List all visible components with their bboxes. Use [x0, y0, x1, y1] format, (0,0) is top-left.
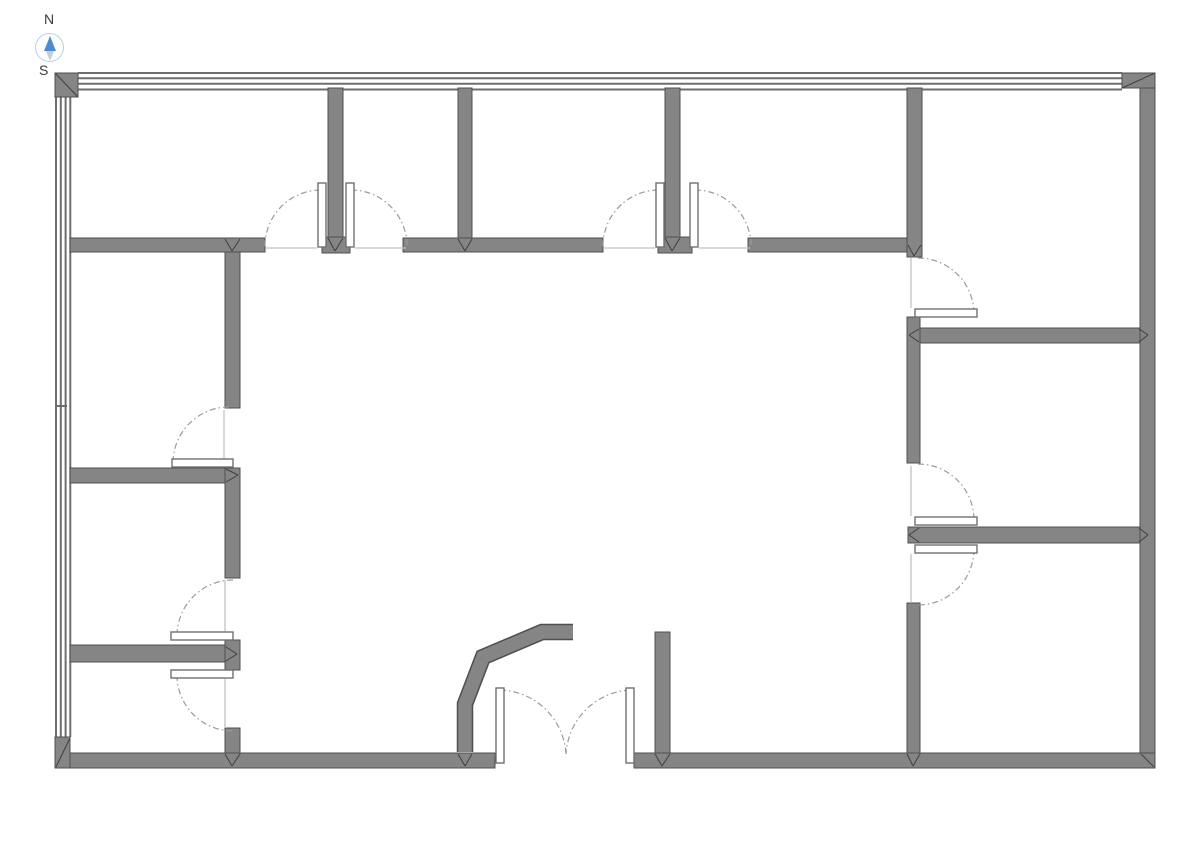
wall [225, 640, 240, 670]
wall [225, 252, 240, 408]
door-leaf [171, 670, 233, 678]
compass-rose: N S [0, 0, 90, 90]
door-leaves-layer [171, 183, 977, 763]
door-swing-arc [173, 407, 229, 463]
miters-layer [225, 238, 1148, 766]
door-swing-arc [603, 190, 659, 246]
door-swing-arc [500, 690, 566, 754]
wall [225, 468, 240, 578]
door-leaf [318, 183, 326, 247]
door-leaf [915, 517, 977, 525]
wall [908, 328, 1140, 343]
floor-plan-svg [0, 0, 1191, 842]
angled-wall [465, 632, 573, 752]
wall [908, 527, 1140, 543]
door-arcs-layer [173, 190, 974, 754]
wall [225, 728, 240, 753]
compass-south-arrow-icon [46, 51, 54, 61]
wall [907, 317, 920, 463]
wall [907, 88, 922, 257]
compass-north-arrow-icon [44, 36, 56, 51]
wall [328, 88, 343, 237]
door-leaf [915, 545, 977, 553]
door-swing-arc [918, 549, 974, 605]
corners-layer [55, 73, 1155, 768]
wall [403, 238, 603, 252]
wall [907, 603, 920, 753]
door-leaf [171, 632, 233, 640]
door-swing-arc [918, 258, 974, 314]
door-leaf [915, 309, 977, 317]
door-leaf [626, 688, 634, 763]
door-leaf [690, 183, 698, 247]
door-swing-arc [918, 464, 974, 520]
door-leaf [346, 183, 354, 247]
door-swing-arc [695, 190, 751, 246]
compass-north-label: N [44, 13, 54, 26]
wall [458, 88, 472, 240]
wall [70, 468, 240, 483]
compass-circle [35, 33, 64, 62]
door-swing-arc [351, 190, 407, 246]
door-leaf [172, 459, 233, 467]
door-leaf [656, 183, 664, 247]
door-swing-arc [265, 190, 321, 246]
walls-layer [56, 73, 1155, 768]
floor-plan: N S [0, 0, 1191, 842]
door-leaf [496, 688, 504, 763]
door-closed-lines-layer [224, 248, 911, 728]
wall [1140, 73, 1155, 768]
west-window-wall [55, 97, 71, 737]
wall [70, 645, 225, 662]
wall [56, 753, 495, 768]
north-window-wall [78, 72, 1122, 91]
wall [655, 632, 670, 753]
compass-south-label: S [39, 64, 48, 77]
wall [748, 238, 907, 252]
door-swing-arc [566, 690, 630, 754]
wall [634, 753, 1155, 768]
wall [665, 88, 680, 237]
